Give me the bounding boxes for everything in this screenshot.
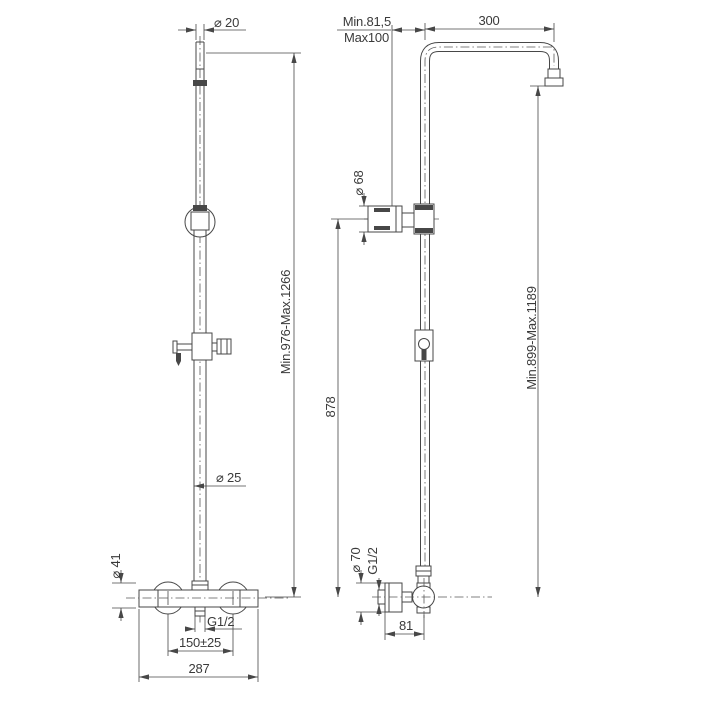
dim-head-height: Min.899-Max.1189: [524, 86, 552, 597]
side-view: Min.81,5 Max100 300 ⌀ 68 878: [323, 13, 563, 640]
dim-top-pipe-diameter: ⌀ 20: [178, 15, 246, 40]
dim-holder-diameter: ⌀ 68: [351, 170, 368, 245]
dim-label-head-height: Min.899-Max.1189: [524, 286, 539, 390]
mixer-side: [372, 566, 492, 618]
wall-flange: [385, 583, 402, 612]
dim-label-top-pipe-diameter: ⌀ 20: [214, 15, 239, 30]
hand-shower-holder: [364, 204, 440, 234]
dim-valve-body-diameter: ⌀ 41: [108, 553, 136, 621]
locking-knob: [217, 339, 231, 354]
dim-label-holder-diameter: ⌀ 68: [351, 170, 366, 195]
knob-stem: [212, 343, 217, 351]
dim-label-wall-distance-max: Max100: [344, 30, 389, 45]
ball-joint: [185, 205, 215, 237]
holder-stem: [402, 213, 414, 227]
pipe-coupling: [193, 80, 207, 86]
hook-bar: [173, 341, 177, 353]
dim-label-rail-height: 878: [323, 396, 338, 417]
dim-rail-diameter: ⌀ 25: [194, 470, 246, 486]
dim-rail-height: 878: [323, 219, 368, 597]
dim-arm-reach: 300: [425, 13, 554, 42]
mixer-front: [126, 581, 288, 616]
dim-label-overall-height: Min.976-Max.1266: [278, 270, 293, 374]
dim-label-inlet-spacing: 150±25: [179, 635, 221, 650]
dim-label-valve-wall-offset: 81: [399, 618, 413, 633]
slider-bracket: [173, 333, 231, 366]
bracket-screw: [419, 339, 430, 350]
dim-outlet-thread: G1/2: [186, 614, 242, 632]
bracket-pin: [422, 349, 427, 360]
front-view: ⌀ 20 Min.976-Max.1266 ⌀ 25 ⌀ 41: [108, 15, 301, 682]
dim-label-flange-diameter: ⌀ 70: [348, 547, 363, 572]
dim-label-valve-body-diameter: ⌀ 41: [108, 553, 123, 578]
dim-overall-height: Min.976-Max.1266: [206, 53, 301, 597]
shower-head-connector: [545, 69, 563, 86]
dim-label-outlet-thread: G1/2: [207, 614, 234, 629]
dim-label-overall-width: 287: [188, 661, 209, 676]
dim-label-arm-reach: 300: [478, 13, 499, 28]
dim-label-rail-diameter: ⌀ 25: [216, 470, 241, 485]
dim-inlet-thread: G1/2: [365, 547, 380, 616]
dim-valve-wall-offset: 81: [385, 612, 424, 640]
hand-shower-hook: [176, 353, 181, 366]
technical-drawing-canvas: ⌀ 20 Min.976-Max.1266 ⌀ 25 ⌀ 41: [0, 0, 720, 720]
wall-bracket: [415, 330, 433, 361]
shower-column-drawing: ⌀ 20 Min.976-Max.1266 ⌀ 25 ⌀ 41: [0, 0, 720, 720]
dim-label-inlet-thread: G1/2: [365, 547, 380, 574]
dim-label-wall-distance-min: Min.81,5: [343, 14, 391, 29]
